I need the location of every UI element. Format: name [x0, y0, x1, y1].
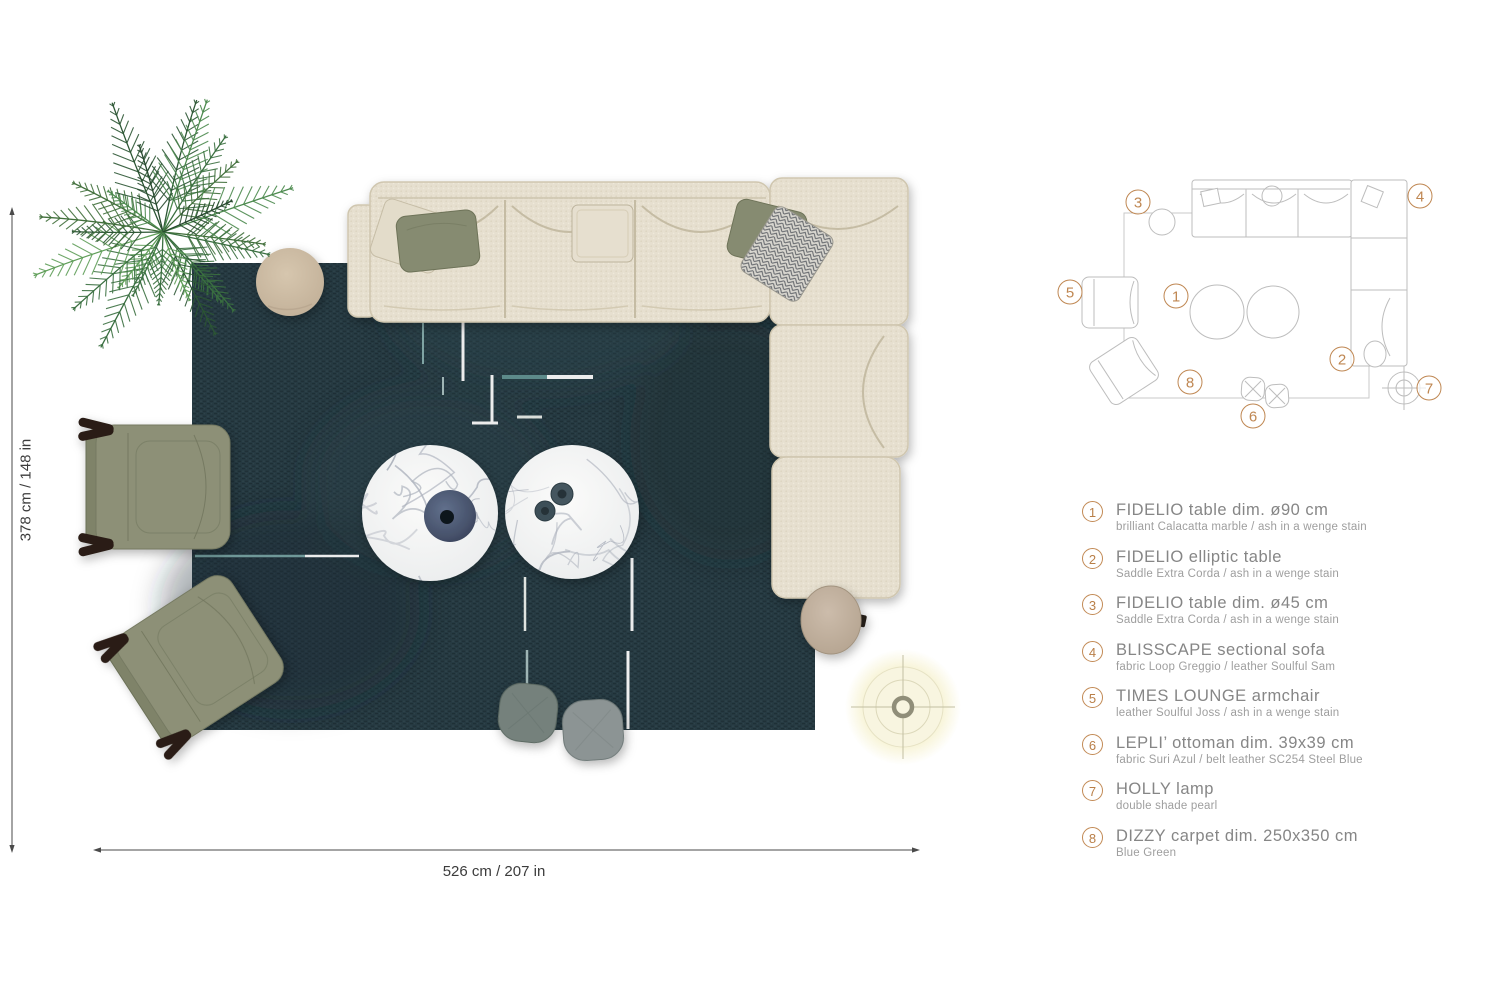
legend-item-1: 1FIDELIO table dim. ø90 cmbrilliant Cala… — [1082, 501, 1442, 534]
holly-lamp — [845, 649, 961, 765]
legend-item-number: 4 — [1082, 641, 1103, 662]
plan-marker-7: 7 — [1417, 376, 1442, 401]
plan-marker-6: 6 — [1241, 404, 1266, 429]
legend-item-6: 6LEPLI’ ottoman dim. 39x39 cmfabric Suri… — [1082, 734, 1442, 767]
legend-item-8: 8DIZZY carpet dim. 250x350 cmBlue Green — [1082, 827, 1442, 860]
plan-table-right — [1247, 286, 1299, 338]
plan-carpet-outline — [1124, 213, 1369, 398]
times-lounge-armchair-top — [77, 417, 230, 557]
lepli-ottoman-right — [561, 698, 625, 762]
legend-item-number: 1 — [1082, 501, 1103, 522]
legend-item-number: 6 — [1082, 734, 1103, 755]
legend-item-subtitle: double shade pearl — [1116, 800, 1442, 813]
legend-item-number: 2 — [1082, 548, 1103, 569]
rendered-floorplan — [0, 0, 1000, 995]
legend-item-7: 7HOLLY lampdouble shade pearl — [1082, 780, 1442, 813]
plan-table-45 — [1149, 209, 1175, 235]
legend-item-title: DIZZY carpet dim. 250x350 cm — [1116, 827, 1442, 845]
legend-item-subtitle: Saddle Extra Corda / ash in a wenge stai… — [1116, 568, 1442, 581]
legend-item-title: TIMES LOUNGE armchair — [1116, 687, 1442, 705]
legend: 1FIDELIO table dim. ø90 cmbrilliant Cala… — [1082, 501, 1442, 873]
legend-item-title: BLISSCAPE sectional sofa — [1116, 641, 1442, 659]
legend-item-number: 8 — [1082, 827, 1103, 848]
legend-item-title: HOLLY lamp — [1116, 780, 1442, 798]
legend-item-subtitle: brilliant Calacatta marble / ash in a we… — [1116, 521, 1442, 534]
sofa-tray — [572, 205, 633, 262]
legend-item-title: FIDELIO table dim. ø45 cm — [1116, 594, 1442, 612]
plan-marker-5: 5 — [1058, 280, 1083, 305]
schematic-floorplan — [1050, 160, 1470, 440]
legend-item-3: 3FIDELIO table dim. ø45 cmSaddle Extra C… — [1082, 594, 1442, 627]
legend-item-number: 7 — [1082, 780, 1103, 801]
horizontal-dimension-label: 526 cm / 207 in — [443, 863, 546, 880]
pillow-olive-left — [395, 209, 480, 273]
floorplan-canvas: 378 cm / 148 in 526 cm / 207 in — [0, 0, 1500, 995]
vertical-dimension-label: 378 cm / 148 in — [18, 439, 35, 542]
legend-item-subtitle: leather Soulful Joss / ash in a wenge st… — [1116, 707, 1442, 720]
plan-armchair-bottom — [1087, 335, 1161, 407]
legend-item-title: FIDELIO elliptic table — [1116, 548, 1442, 566]
plan-armchair-top — [1082, 277, 1138, 328]
legend-item-title: FIDELIO table dim. ø90 cm — [1116, 501, 1442, 519]
plan-marker-2: 2 — [1330, 347, 1355, 372]
plan-table-left — [1190, 285, 1244, 339]
legend-item-subtitle: Blue Green — [1116, 847, 1442, 860]
plan-marker-1: 1 — [1164, 284, 1189, 309]
legend-item-5: 5TIMES LOUNGE armchairleather Soulful Jo… — [1082, 687, 1442, 720]
plan-elliptic-table — [1364, 341, 1386, 367]
fidelio-table-45 — [256, 248, 324, 316]
legend-item-subtitle: fabric Loop Greggio / leather Soulful Sa… — [1116, 661, 1442, 674]
legend-item-subtitle: Saddle Extra Corda / ash in a wenge stai… — [1116, 614, 1442, 627]
lepli-ottoman-left — [496, 681, 560, 745]
plan-marker-8: 8 — [1178, 370, 1203, 395]
legend-item-subtitle: fabric Suri Azul / belt leather SC254 St… — [1116, 754, 1442, 767]
legend-item-2: 2FIDELIO elliptic tableSaddle Extra Cord… — [1082, 548, 1442, 581]
legend-item-number: 5 — [1082, 687, 1103, 708]
legend-item-title: LEPLI’ ottoman dim. 39x39 cm — [1116, 734, 1442, 752]
plan-marker-4: 4 — [1408, 184, 1433, 209]
plan-marker-3: 3 — [1126, 190, 1151, 215]
legend-item-4: 4BLISSCAPE sectional sofafabric Loop Gre… — [1082, 641, 1442, 674]
legend-item-number: 3 — [1082, 594, 1103, 615]
